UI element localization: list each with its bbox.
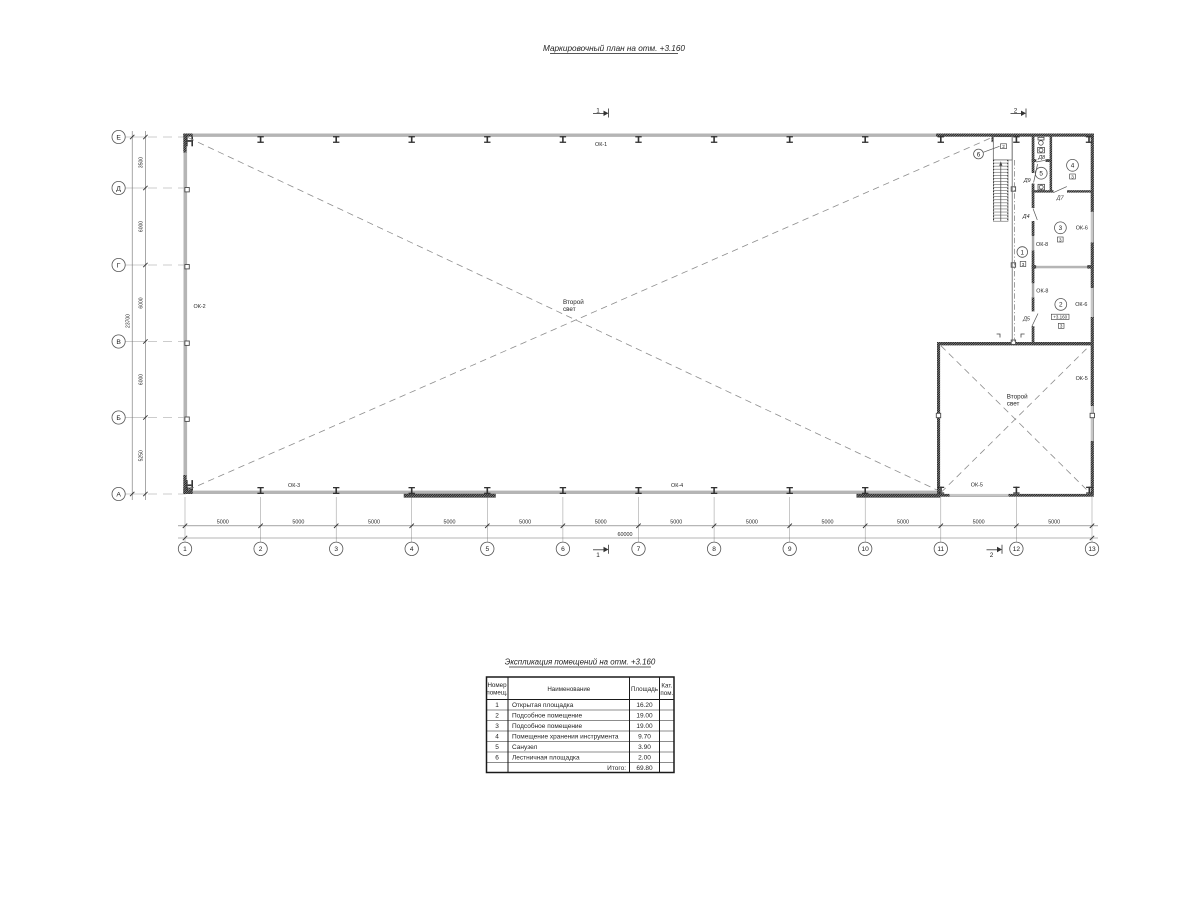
- svg-text:Экспликация помещений на отм.: Экспликация помещений на отм. +3.160: [505, 658, 656, 667]
- svg-text:Санузел: Санузел: [512, 744, 538, 751]
- svg-text:5: 5: [495, 744, 499, 751]
- svg-text:Маркировочный план на отм. +3.: Маркировочный план на отм. +3.160: [543, 44, 685, 53]
- svg-text:11: 11: [937, 546, 944, 553]
- svg-text:5000: 5000: [595, 519, 607, 525]
- svg-text:5000: 5000: [519, 519, 531, 525]
- svg-text:ОК-4: ОК-4: [671, 483, 683, 489]
- svg-text:5250: 5250: [138, 450, 144, 461]
- svg-text:Д7: Д7: [1056, 195, 1065, 201]
- svg-text:69.80: 69.80: [636, 765, 653, 772]
- svg-text:6000: 6000: [138, 297, 144, 308]
- svg-text:2.00: 2.00: [638, 755, 651, 762]
- svg-text:10: 10: [862, 546, 870, 553]
- svg-text:5: 5: [1039, 171, 1043, 178]
- svg-text:5000: 5000: [368, 519, 380, 525]
- svg-text:6000: 6000: [138, 221, 144, 232]
- svg-text:13: 13: [1088, 546, 1096, 553]
- svg-text:6: 6: [561, 546, 565, 553]
- svg-text:2: 2: [1002, 144, 1005, 149]
- svg-text:4: 4: [1071, 163, 1075, 170]
- svg-text:23700: 23700: [126, 314, 132, 328]
- svg-text:Помещение хранения инструмента: Помещение хранения инструмента: [512, 734, 619, 741]
- svg-text:6: 6: [977, 151, 981, 158]
- svg-text:1: 1: [495, 702, 499, 709]
- svg-text:5000: 5000: [1048, 519, 1060, 525]
- svg-text:Д9: Д9: [1023, 178, 1031, 184]
- svg-text:3.90: 3.90: [638, 744, 651, 751]
- svg-text:3: 3: [1059, 225, 1063, 232]
- svg-text:В: В: [116, 339, 121, 346]
- svg-text:ОК-3: ОК-3: [288, 483, 300, 489]
- svg-text:5000: 5000: [822, 519, 834, 525]
- svg-text:Д5: Д5: [1022, 317, 1031, 323]
- svg-text:5000: 5000: [217, 519, 229, 525]
- svg-text:Д: Д: [116, 185, 121, 192]
- svg-text:Наименование: Наименование: [547, 686, 590, 693]
- svg-text:Д8: Д8: [1037, 155, 1045, 161]
- svg-text:5000: 5000: [670, 519, 682, 525]
- svg-text:3: 3: [495, 723, 499, 730]
- svg-text:Б: Б: [116, 415, 121, 422]
- svg-text:Лестничная площадка: Лестничная площадка: [512, 755, 580, 762]
- svg-text:свет: свет: [1007, 400, 1020, 407]
- svg-text:Кат.: Кат.: [661, 683, 672, 690]
- svg-text:3: 3: [1059, 237, 1062, 242]
- svg-text:2: 2: [259, 546, 263, 553]
- svg-text:5000: 5000: [897, 519, 909, 525]
- svg-text:3: 3: [1022, 262, 1025, 267]
- svg-text:12: 12: [1013, 546, 1021, 553]
- svg-text:ОК-5: ОК-5: [971, 483, 983, 489]
- svg-text:+3.160: +3.160: [1053, 314, 1067, 319]
- svg-text:Е: Е: [116, 134, 121, 141]
- svg-text:А: А: [116, 491, 121, 498]
- svg-text:7: 7: [637, 546, 641, 553]
- svg-text:6: 6: [495, 755, 499, 762]
- svg-text:Д4: Д4: [1022, 214, 1030, 220]
- svg-text:Второй: Второй: [563, 298, 584, 306]
- svg-text:ОК-8: ОК-8: [1036, 242, 1048, 248]
- svg-text:19.00: 19.00: [636, 713, 653, 720]
- svg-text:19.00: 19.00: [636, 723, 653, 730]
- svg-text:3: 3: [334, 546, 338, 553]
- svg-text:Г: Г: [117, 262, 121, 269]
- svg-text:2: 2: [990, 552, 994, 559]
- svg-text:ОК-2: ОК-2: [194, 304, 206, 310]
- svg-text:ОК-6: ОК-6: [1076, 226, 1088, 232]
- svg-text:3500: 3500: [138, 157, 144, 168]
- svg-text:Подсобное помещение: Подсобное помещение: [512, 712, 583, 720]
- svg-text:1: 1: [596, 552, 600, 559]
- svg-text:Площадь: Площадь: [631, 686, 658, 693]
- svg-text:Открытая площадка: Открытая площадка: [512, 702, 574, 709]
- svg-text:5000: 5000: [973, 519, 985, 525]
- svg-text:4: 4: [410, 546, 414, 553]
- svg-text:9: 9: [788, 546, 792, 553]
- svg-text:9.70: 9.70: [638, 734, 651, 741]
- svg-text:5: 5: [485, 546, 489, 553]
- svg-text:60000: 60000: [618, 532, 633, 538]
- svg-text:ОК-6: ОК-6: [1075, 302, 1087, 308]
- svg-text:Подсобное помещение: Подсобное помещение: [512, 722, 583, 730]
- svg-text:ОК-5: ОК-5: [1076, 376, 1088, 382]
- svg-text:Номер: Номер: [487, 682, 507, 689]
- svg-text:3: 3: [1060, 324, 1063, 329]
- svg-text:ОК-8: ОК-8: [1036, 289, 1048, 295]
- svg-text:4: 4: [495, 734, 499, 741]
- svg-text:Итого:: Итого:: [607, 765, 626, 772]
- svg-text:1: 1: [1021, 249, 1025, 256]
- svg-text:8: 8: [712, 546, 716, 553]
- svg-text:3: 3: [1071, 174, 1074, 179]
- svg-text:5000: 5000: [746, 519, 758, 525]
- svg-text:2: 2: [1059, 302, 1063, 309]
- svg-text:5000: 5000: [444, 519, 456, 525]
- svg-text:помещ.: помещ.: [486, 690, 508, 697]
- svg-text:свет: свет: [563, 306, 576, 313]
- svg-text:ОК-1: ОК-1: [595, 142, 607, 148]
- svg-text:16.20: 16.20: [636, 702, 653, 709]
- svg-text:пом.: пом.: [660, 690, 673, 697]
- svg-text:Второй: Второй: [1007, 392, 1028, 400]
- svg-text:2: 2: [495, 713, 499, 720]
- svg-text:6000: 6000: [138, 374, 144, 385]
- svg-text:1: 1: [183, 546, 187, 553]
- svg-text:5000: 5000: [292, 519, 304, 525]
